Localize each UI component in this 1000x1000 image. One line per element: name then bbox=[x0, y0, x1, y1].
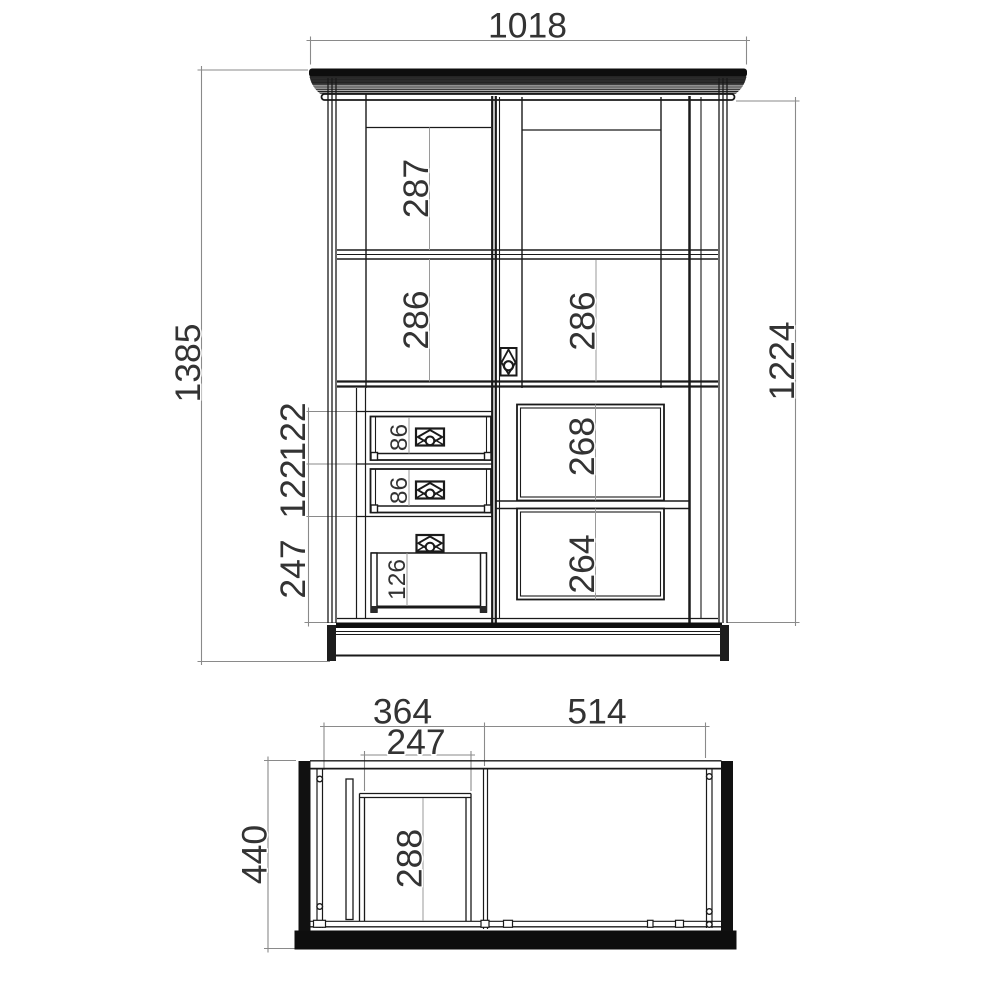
svg-text:86: 86 bbox=[386, 424, 413, 451]
svg-text:247: 247 bbox=[273, 539, 313, 598]
svg-text:514: 514 bbox=[567, 692, 626, 732]
svg-text:1385: 1385 bbox=[168, 324, 208, 403]
svg-text:286: 286 bbox=[563, 291, 603, 350]
svg-text:247: 247 bbox=[386, 722, 445, 762]
svg-text:440: 440 bbox=[235, 825, 275, 884]
svg-text:86: 86 bbox=[386, 477, 413, 504]
svg-text:288: 288 bbox=[390, 829, 430, 888]
svg-text:122: 122 bbox=[273, 402, 313, 461]
svg-text:264: 264 bbox=[562, 534, 602, 593]
svg-text:268: 268 bbox=[562, 417, 602, 476]
svg-text:126: 126 bbox=[384, 559, 411, 600]
svg-text:122: 122 bbox=[273, 459, 313, 518]
svg-text:1018: 1018 bbox=[488, 6, 567, 46]
svg-text:1224: 1224 bbox=[762, 322, 802, 401]
svg-text:287: 287 bbox=[396, 159, 436, 218]
svg-text:286: 286 bbox=[396, 290, 436, 349]
